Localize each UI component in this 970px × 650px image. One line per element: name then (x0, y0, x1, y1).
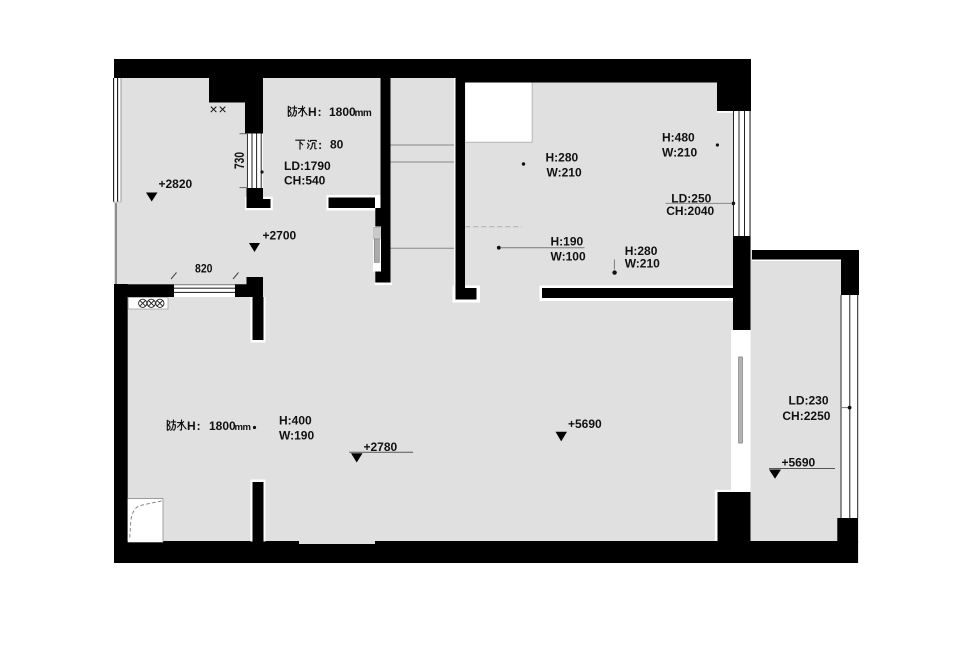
svg-text:H: H (308, 105, 317, 119)
svg-text:H:190: H:190 (551, 235, 584, 249)
svg-text:mm: mm (355, 108, 372, 119)
svg-text:1800: 1800 (209, 419, 236, 433)
svg-text:CH:2040: CH:2040 (666, 204, 714, 218)
svg-text:+5690: +5690 (782, 456, 816, 470)
svg-text:W:100: W:100 (551, 250, 586, 264)
svg-text:+2700: +2700 (263, 229, 297, 243)
svg-text:+5690: +5690 (568, 417, 602, 431)
svg-text:H:400: H:400 (279, 414, 312, 428)
svg-text:LD:1790: LD:1790 (284, 159, 331, 173)
svg-text:LD:230: LD:230 (789, 394, 829, 408)
svg-text:CH:2250: CH:2250 (782, 409, 830, 423)
svg-text:730: 730 (232, 152, 247, 169)
svg-text:1800: 1800 (329, 105, 356, 119)
svg-text:mm: mm (235, 422, 251, 433)
svg-text:820: 820 (195, 262, 213, 276)
svg-text:W:210: W:210 (625, 257, 660, 271)
svg-text:W:210: W:210 (662, 146, 697, 160)
svg-text:××: ×× (210, 101, 228, 117)
svg-text:H: H (187, 419, 196, 433)
svg-text:W:190: W:190 (279, 429, 314, 443)
svg-text:W:210: W:210 (547, 166, 582, 180)
svg-text:H:480: H:480 (662, 131, 695, 145)
svg-text:CH:540: CH:540 (284, 174, 326, 188)
svg-text:+2820: +2820 (159, 177, 193, 191)
svg-text:80: 80 (330, 138, 344, 152)
svg-text:H:280: H:280 (546, 151, 579, 165)
